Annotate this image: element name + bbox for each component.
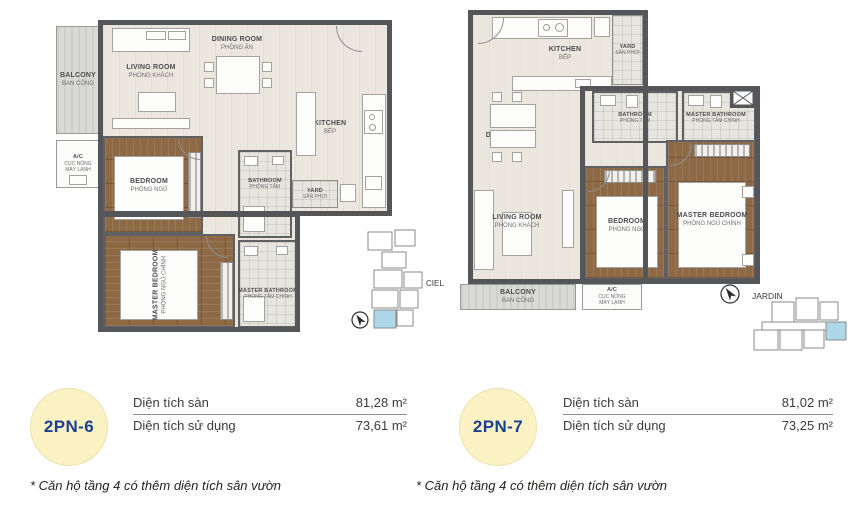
footnote-2pn6: * Căn hộ tầng 4 có thêm diện tích sân vư… bbox=[30, 478, 281, 493]
unit-code: 2PN-7 bbox=[473, 417, 523, 437]
highlighted-unit bbox=[374, 310, 396, 328]
compass-icon bbox=[352, 312, 368, 328]
shaft-box bbox=[730, 88, 756, 108]
room-ac: A/C CỤC NÓNG MÁY LẠNH bbox=[582, 284, 642, 310]
room-yard: YARD SÂN PHƠI bbox=[292, 180, 338, 208]
chair bbox=[204, 62, 214, 72]
row-value: 73,61 m² bbox=[356, 418, 407, 433]
chair bbox=[262, 62, 272, 72]
label-dining: DINING ROOM PHÒNG ĂN bbox=[202, 36, 272, 52]
locator-jardin-svg: JARDIN bbox=[702, 272, 850, 356]
cushion bbox=[146, 31, 166, 40]
wardrobe bbox=[220, 262, 233, 320]
chair bbox=[204, 78, 214, 88]
label-bedroom: BEDROOM PHÒNG NGỦ bbox=[115, 178, 183, 194]
tv-console bbox=[562, 190, 574, 248]
sink bbox=[272, 156, 284, 165]
wardrobe bbox=[694, 144, 750, 157]
label-bathroom: BATHROOM PHÒNG TẮM bbox=[240, 178, 290, 191]
footnote-2pn7: * Căn hộ tầng 4 có thêm diện tích sân vư… bbox=[416, 478, 667, 493]
locator-ciel-svg: CIEL bbox=[348, 228, 444, 334]
room-label-en: BALCONY bbox=[60, 72, 96, 80]
room-ac: A/C CỤC NÓNG MÁY LẠNH bbox=[56, 140, 100, 188]
toilet bbox=[626, 95, 638, 108]
burner bbox=[555, 23, 564, 32]
row-value: 73,25 m² bbox=[782, 418, 833, 433]
toilet bbox=[244, 156, 258, 166]
sofa bbox=[474, 190, 494, 270]
row-value: 81,28 m² bbox=[356, 395, 407, 410]
room-balcony: BALCONY BAN CÔNG bbox=[460, 284, 576, 310]
ac-label-vi2: MÁY LẠNH bbox=[65, 168, 90, 174]
kitchen-island bbox=[512, 76, 612, 91]
room-balcony: BALCONY BAN CÔNG bbox=[56, 26, 100, 134]
sink bbox=[688, 95, 704, 106]
sink bbox=[600, 95, 616, 106]
label-living: LIVING ROOM PHÒNG KHÁCH bbox=[482, 214, 552, 230]
highlighted-unit bbox=[826, 322, 846, 340]
nightstand bbox=[742, 186, 754, 198]
nightstand bbox=[742, 254, 754, 266]
label-master-bedroom: MASTER BEDROOM PHÒNG NGỦ CHÍNH bbox=[130, 248, 190, 322]
washer bbox=[340, 184, 356, 202]
chair bbox=[492, 152, 502, 162]
unit-code: 2PN-6 bbox=[44, 417, 94, 437]
floorplan-2pn7: YARD SÂN PHƠI KITCHEN BẾP DINING ROOM PH… bbox=[450, 0, 850, 365]
row-label: Diện tích sàn bbox=[563, 395, 639, 410]
sink bbox=[276, 246, 288, 255]
floorplan-brochure-page: { "colors": { "wall": "#55565a", "wood_f… bbox=[0, 0, 850, 505]
table-row: Diện tích sử dụng 73,61 m² bbox=[133, 415, 407, 437]
table-row: Diện tích sàn 81,28 m² bbox=[133, 392, 407, 414]
unit-badge-2pn6: 2PN-6 bbox=[30, 388, 108, 466]
chair bbox=[262, 78, 272, 88]
ac-label: A/C bbox=[73, 154, 83, 160]
compass-icon bbox=[721, 285, 739, 303]
kitchen-sink bbox=[365, 176, 382, 190]
locator-label: CIEL bbox=[426, 279, 444, 288]
wardrobe bbox=[604, 170, 656, 183]
island-sink bbox=[575, 79, 591, 88]
row-label: Diện tích sử dụng bbox=[133, 418, 236, 433]
row-label: Diện tích sử dụng bbox=[563, 418, 666, 433]
room-label-vi: BAN CÔNG bbox=[62, 81, 94, 88]
table-row: Diện tích sàn 81,02 m² bbox=[563, 392, 833, 414]
chair bbox=[492, 92, 502, 102]
locator-ciel: CIEL bbox=[348, 228, 444, 334]
row-value: 81,02 m² bbox=[782, 395, 833, 410]
unit-badge-2pn7: 2PN-7 bbox=[459, 388, 537, 466]
label-master-bedroom: MASTER BEDROOM PHÒNG NGỦ CHÍNH bbox=[672, 212, 752, 228]
toilet bbox=[710, 95, 722, 108]
dining-table-2 bbox=[490, 130, 536, 148]
burner bbox=[369, 114, 375, 120]
coffee-table bbox=[138, 92, 176, 112]
label-living: LIVING ROOM PHÒNG KHÁCH bbox=[116, 64, 186, 80]
locator-jardin: JARDIN bbox=[702, 272, 850, 356]
shaft-x bbox=[730, 88, 756, 108]
label-master-bathroom: MASTER BATHROOM PHÒNG TẮM CHÍNH bbox=[686, 112, 746, 125]
cushion bbox=[168, 31, 186, 40]
label-bedroom: BEDROOM PHÒNG NGỦ bbox=[594, 218, 660, 234]
room-yard: YARD SÂN PHƠI bbox=[612, 15, 643, 85]
locator-label: JARDIN bbox=[752, 291, 783, 301]
dining-table bbox=[216, 56, 260, 94]
table-row: Diện tích sử dụng 73,25 m² bbox=[563, 415, 833, 437]
row-label: Diện tích sàn bbox=[133, 395, 209, 410]
area-table-2pn6: Diện tích sàn 81,28 m² Diện tích sử dụng… bbox=[133, 392, 407, 437]
area-table-2pn7: Diện tích sàn 81,02 m² Diện tích sử dụng… bbox=[563, 392, 833, 437]
toilet bbox=[244, 246, 258, 256]
ac-unit bbox=[69, 175, 87, 185]
fridge bbox=[594, 17, 610, 37]
dining-table bbox=[490, 104, 536, 128]
burner bbox=[369, 124, 376, 131]
chair bbox=[512, 152, 522, 162]
wardrobe bbox=[188, 152, 201, 218]
burner bbox=[543, 24, 550, 31]
shower bbox=[243, 206, 265, 232]
chair bbox=[512, 92, 522, 102]
label-master-bathroom: MASTER BATHROOM PHÒNG TẮM CHÍNH bbox=[240, 288, 296, 301]
label-kitchen: KITCHEN BẾP bbox=[535, 46, 595, 62]
kitchen-island bbox=[296, 92, 316, 156]
floorplan-2pn6: BALCONY BAN CÔNG A/C CỤC NÓNG MÁY LẠNH L… bbox=[0, 0, 450, 360]
tv-console bbox=[112, 118, 190, 129]
label-bathroom: BATHROOM PHÒNG TẮM bbox=[608, 112, 662, 125]
